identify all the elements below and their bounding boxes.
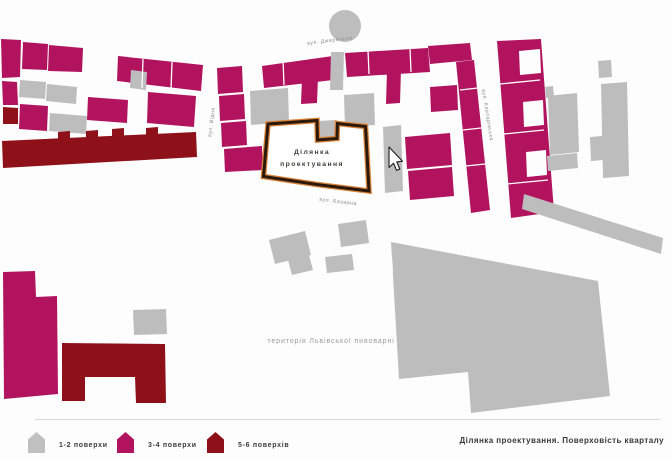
building [48, 45, 83, 72]
building [46, 84, 77, 104]
building [3, 107, 18, 124]
building [545, 86, 554, 98]
house-icon-shape [207, 432, 224, 453]
courtyard [526, 150, 547, 177]
building [112, 128, 124, 139]
building [250, 88, 289, 125]
house-icon-shape [117, 432, 134, 453]
block-east-strip [497, 39, 554, 218]
street-label-vidnya: вул. Відня [207, 107, 217, 137]
street-label-dzherelna: вул. Джерельна [307, 35, 353, 47]
site-label-line2: проектування [280, 161, 344, 168]
legend-item-5-6: 5-6 поверхів [207, 432, 289, 453]
building [219, 94, 245, 121]
legend-label: 5-6 поверхів [238, 442, 289, 453]
building [386, 69, 401, 104]
building [87, 97, 128, 123]
building [58, 131, 70, 141]
building [224, 146, 263, 172]
building [19, 104, 48, 131]
street-label-kleparivska: вул. Клепарівська [480, 89, 494, 142]
building [19, 80, 46, 99]
house-icon [207, 432, 224, 453]
figure-caption: Ділянка проектування. Поверховість кварт… [460, 436, 665, 445]
courtyard [523, 100, 544, 127]
street-label-bazarna: вул. Базарна [319, 197, 357, 208]
brewery-area-label: територія Львівської пивоварні [267, 337, 394, 345]
house-icon [117, 432, 134, 453]
quarter-map: Ділянка проектування вул. Джерельна вул.… [0, 0, 672, 418]
house-icon [28, 432, 45, 453]
building [133, 309, 167, 335]
building [590, 136, 604, 161]
building [221, 121, 247, 147]
legend-item-3-4: 3-4 поверхи [117, 432, 197, 453]
legend: 1-2 поверхи 3-4 поверхи 5-6 поверхів Діл… [0, 419, 672, 460]
building [405, 133, 452, 169]
courtyard [519, 49, 541, 75]
building [456, 60, 490, 213]
building [49, 113, 87, 134]
block-west [1, 39, 203, 168]
building [146, 127, 158, 138]
building [301, 77, 318, 104]
building [86, 130, 98, 140]
building [428, 43, 472, 64]
building [62, 343, 166, 403]
legend-label: 1-2 поверхи [59, 442, 108, 453]
building [330, 52, 344, 90]
building [117, 56, 203, 91]
legend-separator [35, 419, 660, 420]
building [522, 194, 663, 254]
building [430, 85, 458, 112]
block-south-west [3, 271, 167, 403]
building [338, 220, 369, 247]
building [408, 167, 454, 200]
site-plan-figure: Ділянка проектування вул. Джерельна вул.… [0, 0, 672, 460]
building [130, 70, 147, 90]
legend-label: 3-4 поверхи [148, 442, 197, 453]
building [217, 66, 243, 94]
house-icon-shape [28, 432, 45, 453]
courtyard [379, 256, 393, 272]
building [2, 81, 18, 105]
site-label-line1: Ділянка [294, 148, 330, 156]
building [2, 132, 197, 168]
building [548, 93, 579, 155]
building [601, 82, 629, 178]
building [598, 60, 612, 78]
building [22, 42, 48, 70]
legend-item-1-2: 1-2 поверхи [28, 432, 108, 453]
building [147, 92, 196, 127]
design-site: Ділянка проектування [264, 121, 370, 192]
building [325, 254, 354, 273]
building [344, 93, 375, 127]
building [1, 39, 21, 78]
building [3, 271, 58, 399]
building [547, 153, 578, 171]
brewery-grounds [391, 242, 610, 413]
